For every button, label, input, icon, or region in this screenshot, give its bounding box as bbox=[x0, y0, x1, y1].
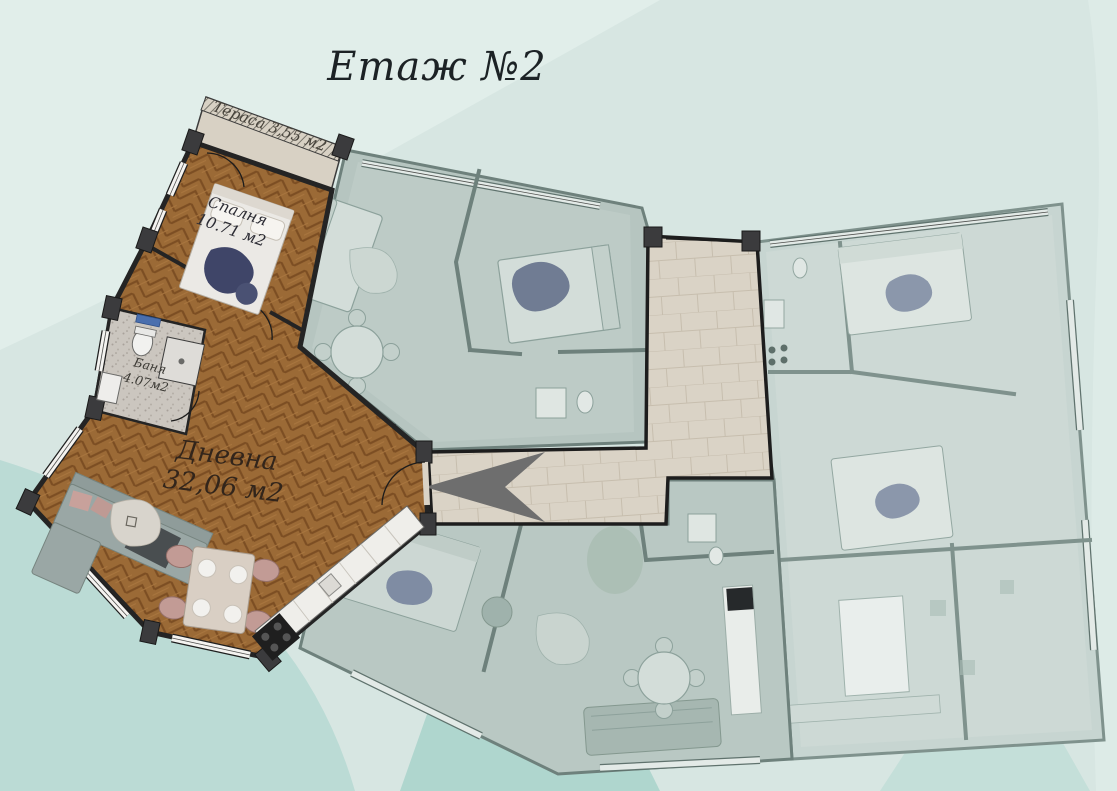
unit-bottom-wardrobe bbox=[587, 526, 643, 594]
unit-bottom-sofa bbox=[583, 698, 721, 755]
floorplan-canvas: Етаж №2 bbox=[0, 0, 1117, 791]
unit-bottom-armchair bbox=[482, 597, 512, 627]
page-title: Етаж №2 bbox=[326, 44, 546, 90]
unit-right-bed-bottom bbox=[831, 446, 953, 551]
unit-right-bed-top bbox=[838, 233, 972, 335]
active-rug bbox=[111, 500, 161, 547]
corridor-pillar-right bbox=[742, 231, 760, 251]
unit-right[interactable] bbox=[757, 204, 1104, 759]
unit-middle-bed bbox=[498, 245, 621, 344]
corridor-pillar-left bbox=[644, 227, 662, 247]
floorplan-svg: Етаж №2 bbox=[0, 0, 1117, 791]
